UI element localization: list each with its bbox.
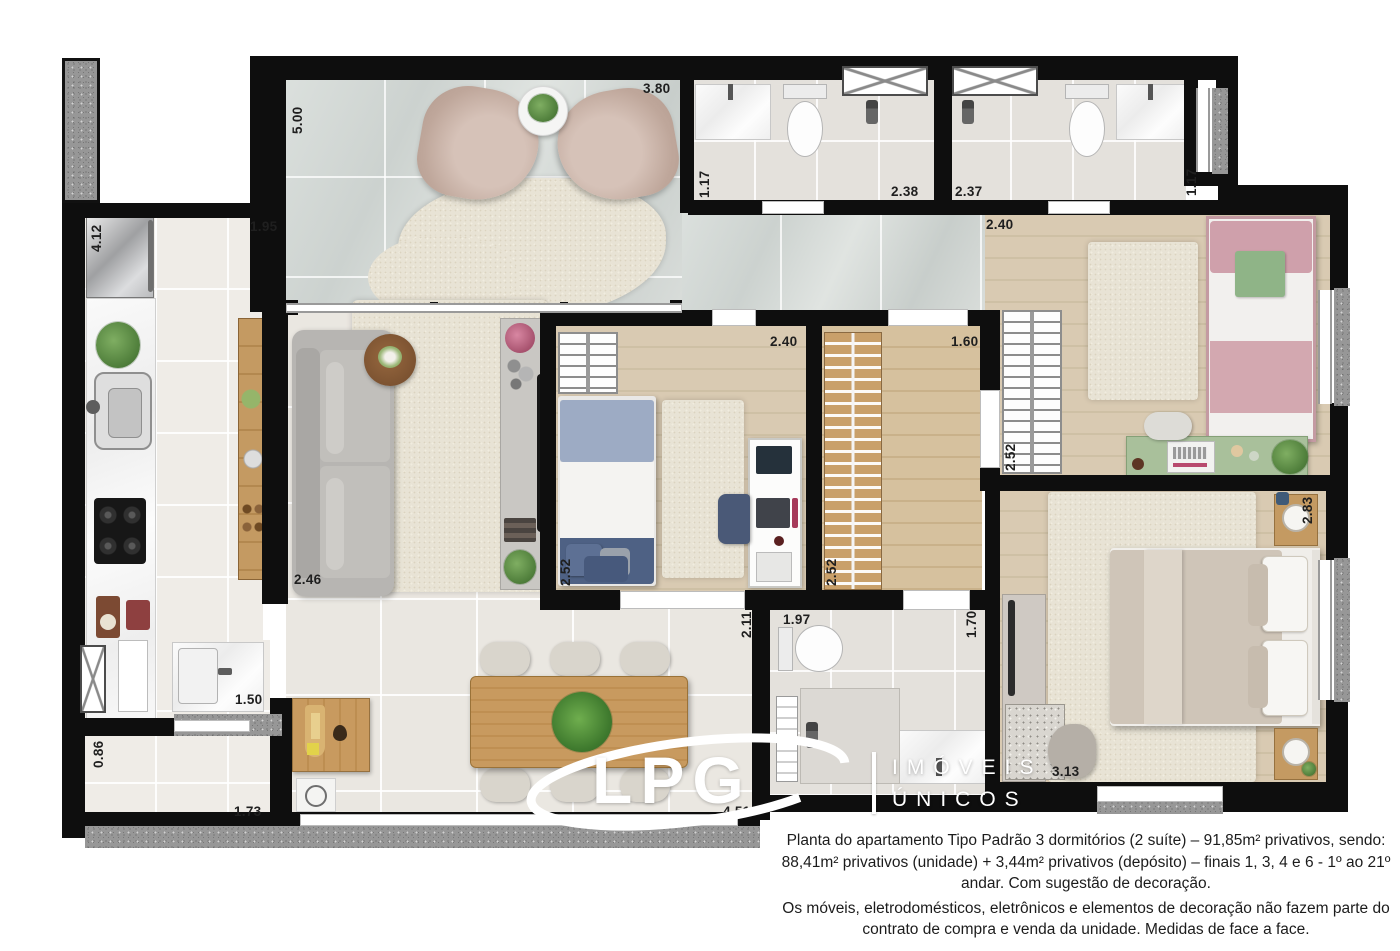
measure-bath2-length: 2.37 xyxy=(955,184,982,199)
wall-service-deposito-a xyxy=(62,718,174,736)
dining-chair-3 xyxy=(620,642,670,676)
bath2-shower-head xyxy=(962,100,974,124)
measure-closet-depth: 2.52 xyxy=(824,559,839,586)
master-bed xyxy=(1110,548,1320,726)
door-bath3 xyxy=(903,590,970,610)
tv-rack-plant xyxy=(504,550,536,584)
balcony-table-plant xyxy=(528,94,558,122)
measure-kitchen-length: 4.12 xyxy=(89,225,104,252)
bedroom2-bed xyxy=(558,396,656,586)
measure-bath1-width: 1.17 xyxy=(697,171,712,198)
wall-bedroom3-right-b xyxy=(1330,403,1348,481)
wall-closet-top-a xyxy=(830,310,888,326)
master-desk-monitor xyxy=(1008,600,1015,696)
wall-closet-right-b xyxy=(980,468,1000,491)
granite-top-left xyxy=(62,58,100,203)
window-master-south xyxy=(1097,786,1223,802)
dining-chair-2 xyxy=(550,642,600,676)
measure-kitchen-width: 1.95 xyxy=(250,219,277,234)
bedroom3-decor xyxy=(1132,458,1144,470)
bath2-toilet xyxy=(1062,84,1112,164)
bath2-faucet xyxy=(1148,84,1153,100)
bedroom2-rug xyxy=(662,400,744,578)
logo-brand-text: LPG xyxy=(592,742,752,818)
shower-glass-bath1 xyxy=(842,66,928,96)
granite-ne-pillar xyxy=(1212,88,1228,174)
tv-rack-decor xyxy=(506,358,534,392)
window-bedroom3-right xyxy=(1318,290,1332,404)
brand-logo: LPG IMÓVEIS ÚNICOS xyxy=(520,730,1040,835)
caption-paragraph-2: Os móveis, eletrodomésticos, eletrônicos… xyxy=(770,898,1400,941)
wall-south-band-a xyxy=(540,590,620,610)
measure-bath1-length: 2.38 xyxy=(891,184,918,199)
bedroom3-chair xyxy=(1144,412,1192,440)
wall-closet-right-a xyxy=(980,312,1000,390)
measure-balcony-width: 3.80 xyxy=(643,81,670,96)
bedroom3-desk-plant xyxy=(1272,440,1308,474)
measure-master-length: 3.13 xyxy=(1052,764,1079,779)
granite-master-window-sill xyxy=(1097,800,1223,814)
bedroom2-wardrobe xyxy=(558,332,618,394)
measure-balcony-depth: 5.00 xyxy=(290,107,305,134)
granite-master-window xyxy=(1334,558,1350,702)
measure-bedroom3-depth: 2.52 xyxy=(1003,444,1018,471)
measure-closet-width: 1.60 xyxy=(951,334,978,349)
measure-hall-width: 2.40 xyxy=(986,217,1013,232)
wall-top-balcony xyxy=(250,56,690,80)
dining-chair-1 xyxy=(480,642,530,676)
wall-bedroom3-right-a xyxy=(1330,212,1348,290)
wall-bath1-left xyxy=(680,80,694,213)
wall-bed2-closet xyxy=(806,310,822,606)
bath3-toilet xyxy=(778,624,844,674)
laundry-faucet xyxy=(218,668,232,675)
wall-bath-divider xyxy=(934,80,952,213)
master-nightstand-decor xyxy=(1276,492,1289,505)
stove xyxy=(94,498,146,564)
logo-tagline-2: ÚNICOS xyxy=(892,788,1028,812)
bedroom3-rug xyxy=(1088,242,1198,400)
wall-left-outer xyxy=(62,203,85,838)
measure-bath3-width: 1.97 xyxy=(783,612,810,627)
logo-tagline-1: IMÓVEIS xyxy=(892,756,1043,780)
bath1-sink-counter xyxy=(695,84,771,140)
measure-bath2-width: 1.17 xyxy=(1184,169,1199,196)
door-deposito xyxy=(174,720,250,732)
wall-bed2-left xyxy=(540,310,556,606)
balcony-sliding-door xyxy=(286,303,682,313)
kitchen-appliance-1 xyxy=(96,596,120,638)
measure-hall2-depth: 2.11 xyxy=(739,611,754,638)
door-closet xyxy=(888,309,968,326)
door-bedroom2-south xyxy=(620,591,745,609)
measure-bedroom2-depth: 2.52 xyxy=(558,559,573,586)
wall-kitchen-living xyxy=(262,312,288,604)
caption-paragraph-1: Planta do apartamento Tipo Padrão 3 dorm… xyxy=(770,830,1400,895)
kitchen-faucet xyxy=(86,400,100,414)
logo-divider xyxy=(872,752,876,814)
kitchen-appliance-2 xyxy=(126,600,150,630)
bedroom3-bed xyxy=(1206,216,1316,442)
measure-bath3-depth: 1.70 xyxy=(964,611,979,638)
door-bath2 xyxy=(1048,201,1110,214)
measure-living-width: 2.46 xyxy=(294,572,321,587)
bath1-toilet xyxy=(780,84,830,164)
living-side-table xyxy=(364,334,416,386)
laundry-tank xyxy=(178,648,218,704)
wall-bed3-master-divider xyxy=(985,475,1330,491)
hall-corridor-floor xyxy=(682,213,985,312)
plan-caption: Planta do apartamento Tipo Padrão 3 dorm… xyxy=(770,830,1400,944)
master-plant xyxy=(1302,762,1316,776)
wall-kitchen-top xyxy=(62,203,262,218)
measure-deposito-length: 1.73 xyxy=(234,804,261,819)
measure-master-width: 2.83 xyxy=(1300,497,1315,524)
measure-service-width: 1.50 xyxy=(235,692,262,707)
bedroom2-chair xyxy=(718,494,750,544)
bath1-shower-head xyxy=(866,100,878,124)
kitchen-plant xyxy=(96,322,140,368)
floor-plan-page: 5.00 3.80 1.17 2.38 2.37 1.17 2.40 4.12 … xyxy=(0,0,1400,951)
door-service xyxy=(118,640,148,712)
bath1-faucet xyxy=(728,84,733,100)
shower-glass-bath2 xyxy=(952,66,1038,96)
door-bath1 xyxy=(762,201,824,214)
door-bedroom2 xyxy=(712,309,756,326)
tv-rack-books xyxy=(504,518,536,542)
window-master-right xyxy=(1318,560,1332,700)
measure-deposito-width: 0.86 xyxy=(91,741,106,768)
fridge-handle xyxy=(148,220,153,292)
window-bath2-right xyxy=(1196,88,1210,172)
wall-balcony-kitchen xyxy=(250,56,286,312)
closet-hanger-rack xyxy=(824,332,882,590)
entry-doormat xyxy=(296,778,336,812)
tv-rack-flowers xyxy=(505,323,535,353)
service-duct-window xyxy=(80,645,106,713)
granite-bed3-window xyxy=(1334,288,1350,406)
door-master-passage xyxy=(980,390,1000,468)
kitchen-sink xyxy=(94,372,152,450)
measure-bedroom2-width: 2.40 xyxy=(770,334,797,349)
dining-sideboard xyxy=(292,698,370,772)
bedroom2-desk xyxy=(748,438,802,588)
